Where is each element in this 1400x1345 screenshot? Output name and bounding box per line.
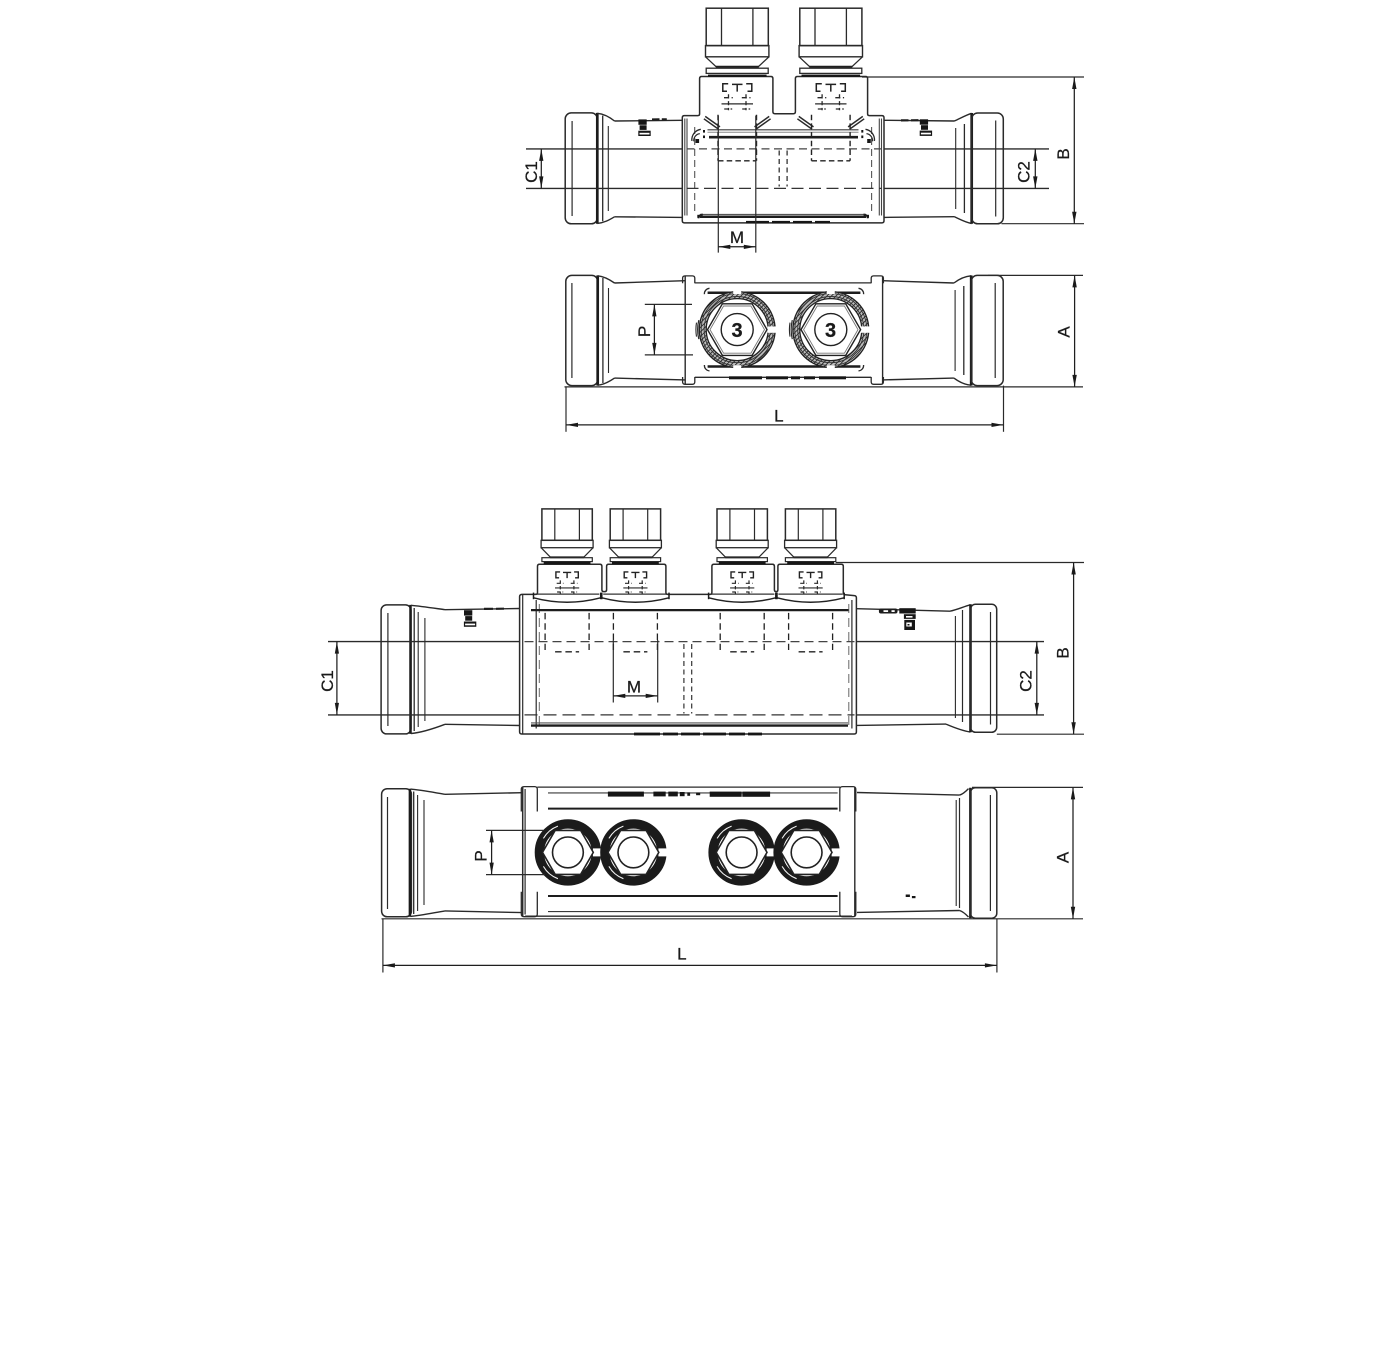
svg-text:L: L [677, 945, 686, 964]
svg-text:3: 3 [825, 320, 836, 342]
svg-text:A: A [1055, 326, 1074, 338]
svg-text:C2: C2 [1014, 161, 1033, 183]
svg-text:M: M [627, 678, 641, 697]
svg-text:B: B [1053, 647, 1072, 658]
svg-text:3: 3 [731, 320, 742, 342]
svg-text:B: B [1054, 148, 1073, 159]
svg-text:L: L [774, 407, 783, 426]
svg-text:P: P [472, 850, 491, 861]
svg-text:C2: C2 [1016, 670, 1035, 692]
svg-text:P: P [635, 326, 654, 337]
svg-text:C1: C1 [318, 670, 337, 692]
svg-text:A: A [1053, 851, 1072, 863]
svg-text:C1: C1 [522, 161, 541, 183]
svg-text:M: M [730, 228, 744, 247]
